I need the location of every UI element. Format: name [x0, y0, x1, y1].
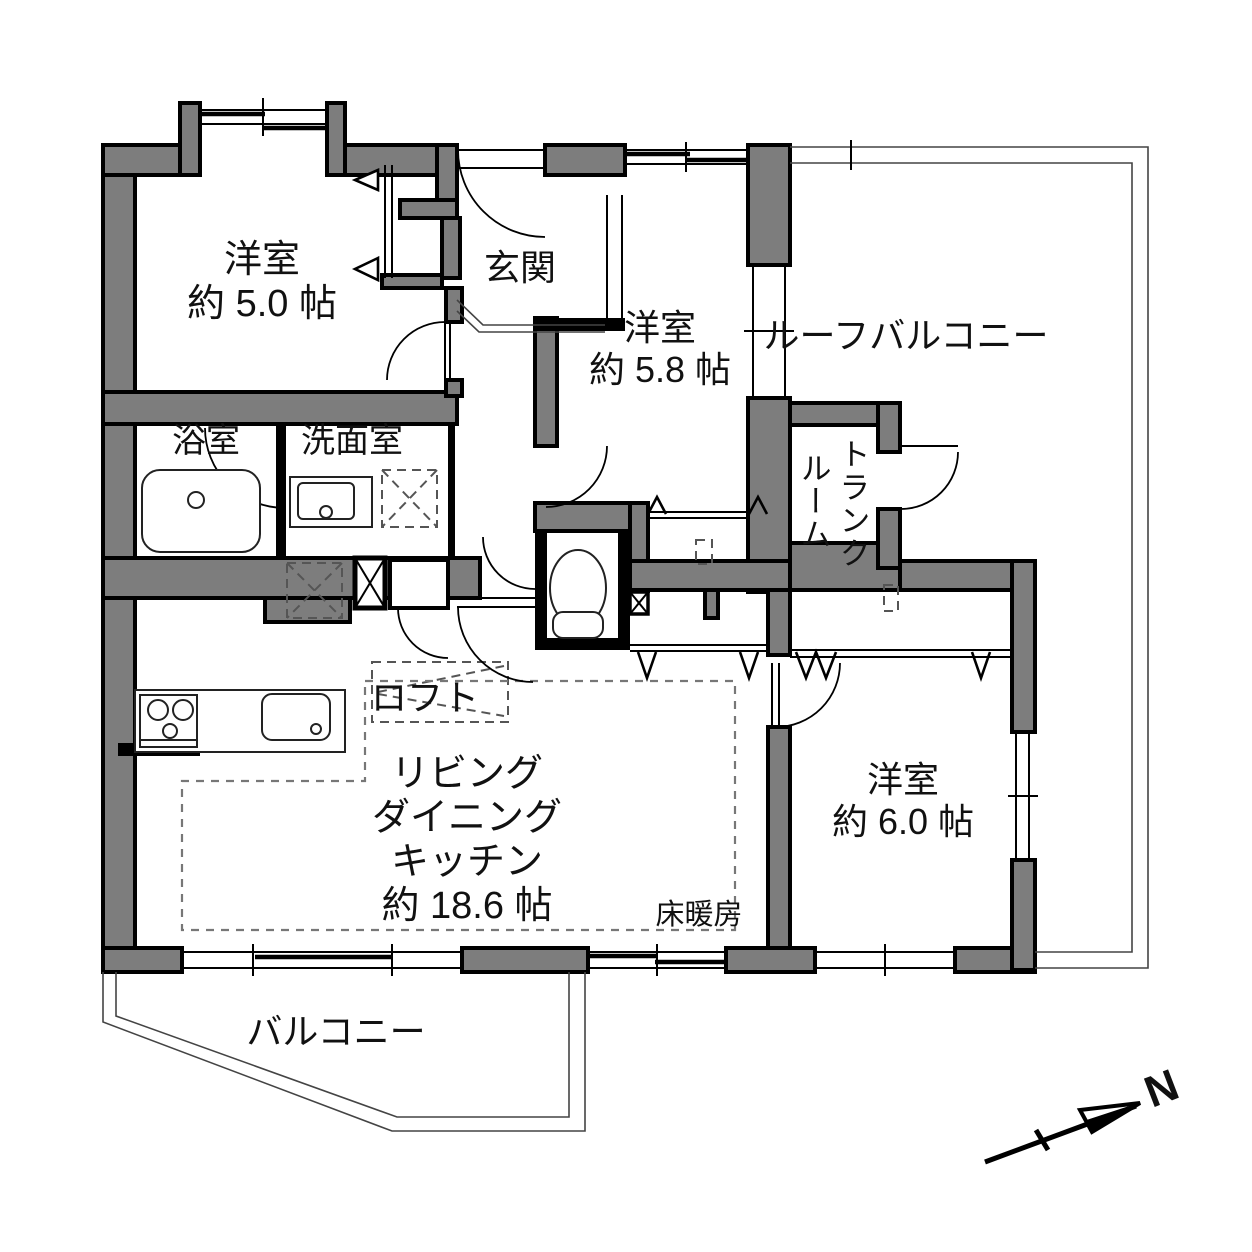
trunk-room-label-col2: ルーム — [796, 452, 831, 551]
pipe-space-icon — [630, 592, 648, 614]
pipe-space-icon — [355, 558, 385, 608]
storage-door-arc — [398, 608, 448, 658]
bedroom-n-door-arc — [546, 446, 607, 507]
roof-balcony-label: ルーフバルコニー — [763, 315, 1048, 356]
bedroom-nw-size: 約 5.0 帖 — [187, 283, 337, 325]
ldk-label-line3: キッチン — [391, 841, 543, 883]
ldk-door-arc — [458, 607, 533, 682]
floorplan-page: N 洋室 約 5.0 帖 玄関 洋室 約 5.8 帖 ルーフバルコニー 浴室 洗… — [0, 0, 1252, 1252]
ldk-size: 約 18.6 帖 — [381, 885, 552, 927]
bedroom-e-label: 洋室 — [867, 759, 939, 800]
toilet-door-arc — [483, 537, 535, 589]
kitchen-counter — [135, 690, 345, 752]
ldk-label-line2: ダイニング — [372, 797, 562, 839]
bedroom-n-size: 約 5.8 帖 — [589, 349, 731, 390]
bedroom-nw-label: 洋室 — [224, 239, 300, 281]
bathroom-label: 浴室 — [172, 422, 240, 460]
washing-machine-space-icon — [382, 470, 437, 527]
bedroom-e-size: 約 6.0 帖 — [832, 801, 974, 842]
washbasin-icon — [290, 477, 372, 527]
bathtub-icon — [142, 470, 260, 552]
trunk-room-label-col1: トランク — [835, 438, 870, 570]
compass-north-icon: N — [985, 1060, 1185, 1162]
entrance-label: 玄関 — [484, 247, 556, 288]
floor-heating-label: 床暖房 — [655, 898, 742, 931]
hall-storage — [390, 560, 448, 608]
stove-icon — [140, 695, 197, 747]
compass-label: N — [1138, 1060, 1185, 1117]
loft-label: ロフト — [371, 677, 479, 718]
bedroom-nw-door-arc — [387, 322, 445, 380]
bedroom-n-label: 洋室 — [624, 307, 696, 348]
kitchen-sink-icon — [262, 694, 330, 740]
toilet-icon — [550, 550, 606, 638]
trunk-door-arc — [901, 452, 958, 509]
balcony-label: バルコニー — [246, 1011, 425, 1052]
washroom-label: 洗面室 — [301, 422, 403, 460]
entrance-door-arc — [458, 150, 545, 237]
floorplan-drawing: N 洋室 約 5.0 帖 玄関 洋室 約 5.8 帖 ルーフバルコニー 浴室 洗… — [0, 0, 1252, 1252]
ldk-label-line1: リビング — [391, 753, 543, 795]
windows — [182, 98, 1038, 976]
